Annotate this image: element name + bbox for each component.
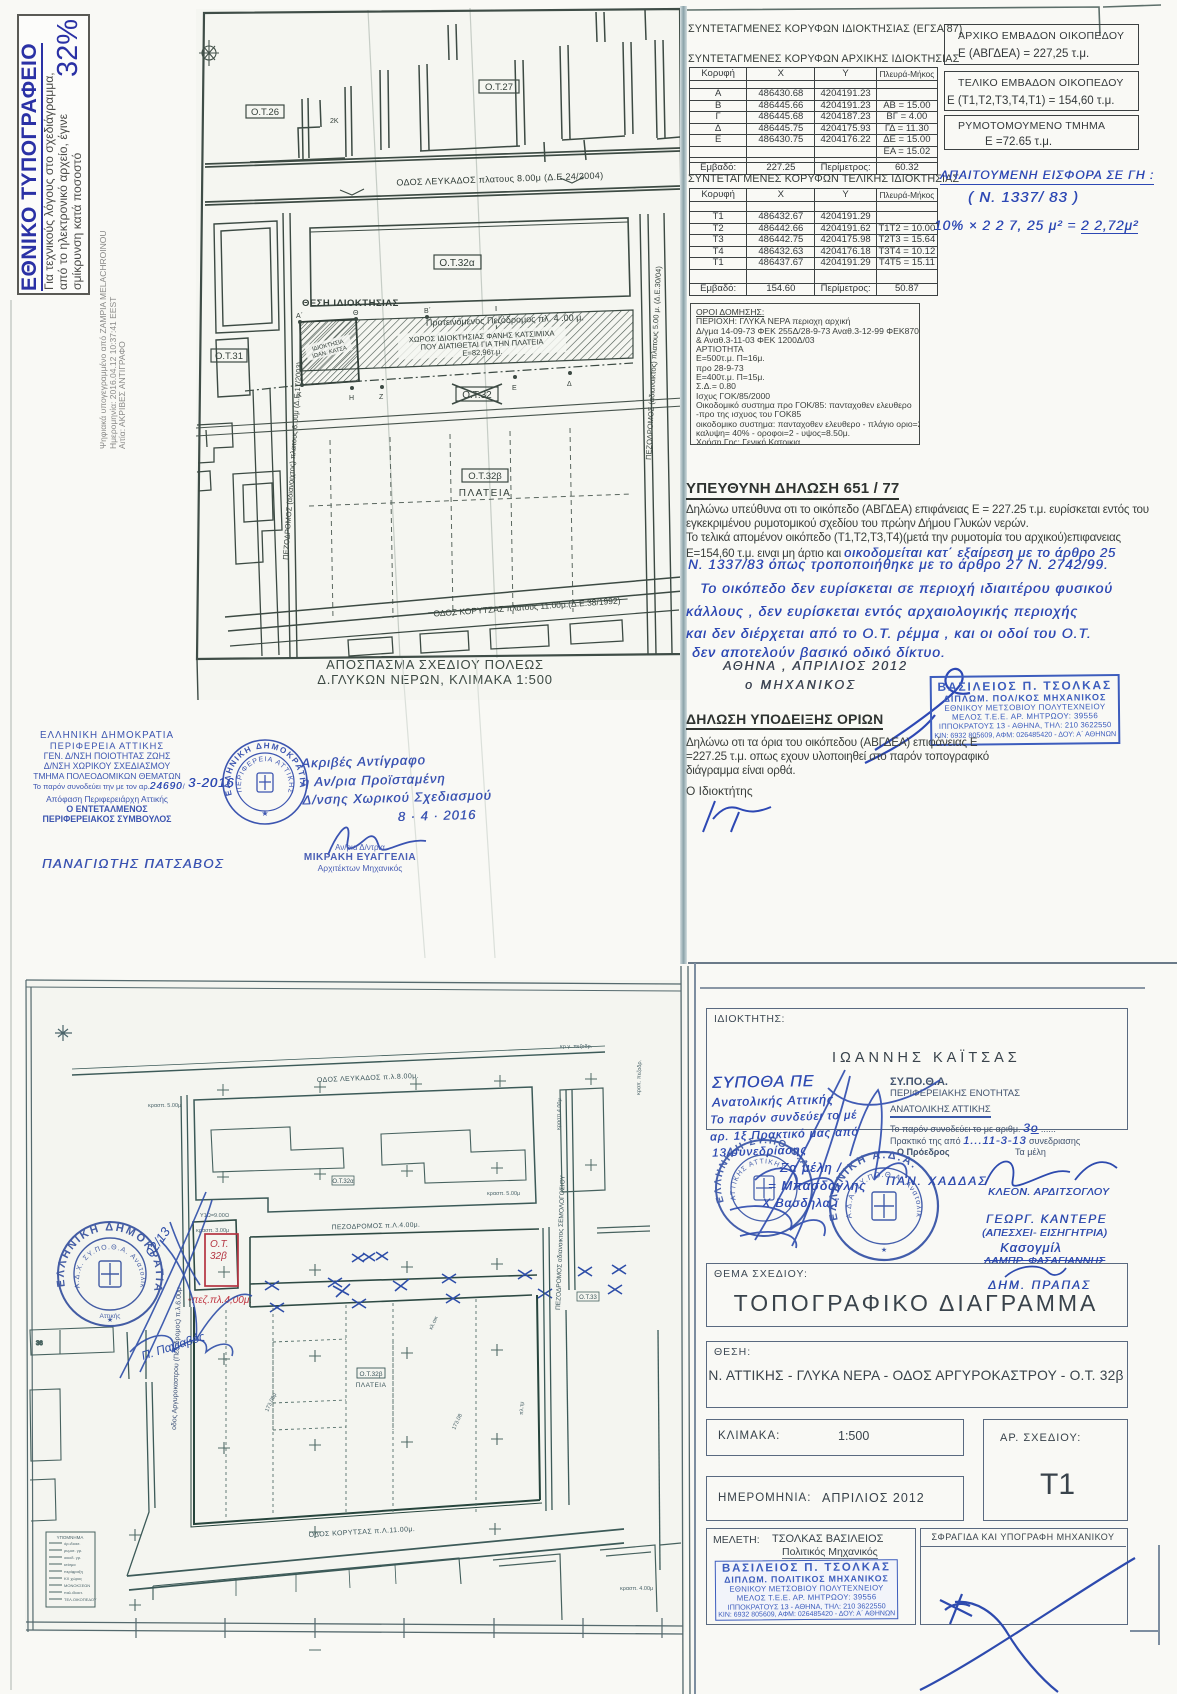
svg-text:Ο.Τ.32α: Ο.Τ.32α — [439, 258, 474, 269]
svg-text:όρ.ιδιοκτ.: όρ.ιδιοκτ. — [64, 1541, 81, 1546]
svg-text:Ο.Τ.31: Ο.Τ.31 — [215, 351, 243, 362]
svg-text:ΚΧ χώρος: ΚΧ χώρος — [64, 1576, 82, 1581]
svg-text:Υ1Ω=9.00: Υ1Ω=9.00 — [200, 1213, 225, 1219]
svg-text:ΜΟΝΟΚΣΕΩΝ: ΜΟΝΟΚΣΕΩΝ — [64, 1583, 90, 1588]
svg-text:Ο.Τ.32: Ο.Τ.32 — [462, 390, 492, 401]
svg-text:•πεζ.πλ.4,00μ.: •πεζ.πλ.4,00μ. — [188, 1295, 252, 1306]
svg-text:Ο.Τ.32α: Ο.Τ.32α — [332, 1179, 354, 1185]
svg-text:ΤΕΛ.ΟΙΚΟΠΕΔΟΥ: ΤΕΛ.ΟΙΚΟΠΕΔΟΥ — [64, 1597, 97, 1602]
svg-text:κτίσμα: κτίσμα — [64, 1562, 76, 1567]
svg-text:Ο.Τ.27: Ο.Τ.27 — [485, 82, 513, 93]
svg-text:ΘΕΣΗ ΙΔΙΟΚΤΗΣΙΑΣ: ΘΕΣΗ ΙΔΙΟΚΤΗΣΙΑΣ — [302, 298, 399, 309]
svg-text:ρυμοτ. γρ.: ρυμοτ. γρ. — [64, 1548, 82, 1553]
svg-text:Ε: Ε — [512, 385, 517, 392]
svg-text:Β΄: Β΄ — [424, 308, 431, 315]
svg-text:Ω: Ω — [225, 1213, 229, 1219]
svg-text:κραπ. πεζοδρ.: κραπ. πεζοδρ. — [636, 1059, 643, 1095]
svg-text:Θ: Θ — [353, 310, 359, 317]
svg-text:Ε=82,96τ.μ.: Ε=82,96τ.μ. — [462, 347, 502, 358]
svg-text:ΠΛΑΤΕΙΑ: ΠΛΑΤΕΙΑ — [356, 1382, 387, 1389]
svg-text:κρασπ. 5.00μ: κρασπ. 5.00μ — [148, 1103, 181, 1109]
svg-text:Ο.Τ.: Ο.Τ. — [210, 1239, 229, 1250]
svg-text:περίφραξη: περίφραξη — [64, 1569, 83, 1574]
svg-text:Ζ: Ζ — [379, 394, 384, 401]
svg-text:πλ.τμ: πλ.τμ — [519, 1401, 525, 1415]
svg-text:Ο.Τ.32β: Ο.Τ.32β — [468, 471, 502, 482]
svg-text:Δ: Δ — [567, 381, 572, 388]
svg-text:παλ.ιδιοκτ.: παλ.ιδιοκτ. — [64, 1590, 83, 1595]
svg-text:★: ★ — [107, 1316, 113, 1324]
svg-text:32β: 32β — [210, 1251, 227, 1262]
svg-text:Ο.Τ.26: Ο.Τ.26 — [251, 107, 279, 118]
svg-text:κρασπ. 4.00μ: κρασπ. 4.00μ — [620, 1586, 653, 1592]
svg-text:κρ.γ. πεζοδρ.: κρ.γ. πεζοδρ. — [560, 1044, 593, 1050]
svg-text:36: 36 — [36, 1341, 43, 1347]
svg-text:κρασπ. 5.00μ: κρασπ. 5.00μ — [487, 1191, 520, 1197]
svg-text:Ο.Τ.33: Ο.Τ.33 — [579, 1295, 597, 1301]
svg-text:ΥΠΟΜΝΗΜΑ: ΥΠΟΜΝΗΜΑ — [57, 1535, 84, 1540]
svg-text:★: ★ — [261, 809, 268, 818]
svg-text:Η: Η — [349, 395, 354, 402]
svg-text:Α΄: Α΄ — [296, 313, 303, 320]
svg-text:ΠΛΑΤΕΙΑ: ΠΛΑΤΕΙΑ — [459, 488, 512, 499]
svg-text:2Κ: 2Κ — [330, 118, 339, 125]
svg-text:Κ: Κ — [297, 392, 302, 399]
svg-text:Ο.Τ.32β: Ο.Τ.32β — [360, 1371, 383, 1378]
svg-text:κρασπ 4.00μ: κρασπ 4.00μ — [556, 1098, 563, 1130]
svg-text:οικοδ. γρ.: οικοδ. γρ. — [64, 1555, 81, 1560]
